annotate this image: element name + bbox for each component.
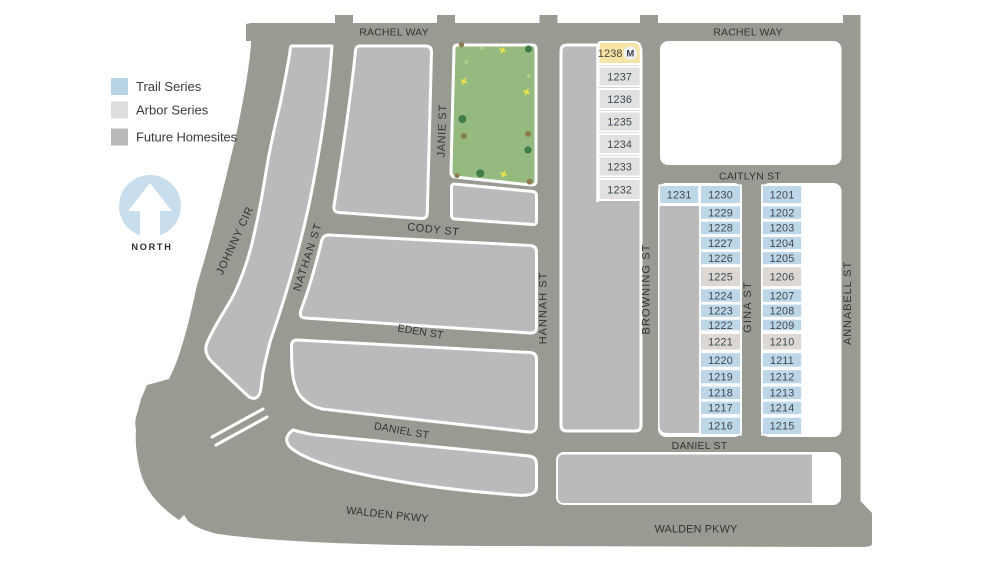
svg-text:1235: 1235 bbox=[607, 116, 632, 128]
svg-text:1238: 1238 bbox=[598, 48, 623, 60]
svg-text:1225: 1225 bbox=[708, 271, 733, 283]
svg-text:1216: 1216 bbox=[708, 421, 733, 433]
svg-text:1236: 1236 bbox=[607, 94, 632, 106]
svg-text:1226: 1226 bbox=[708, 253, 733, 265]
svg-text:1234: 1234 bbox=[607, 139, 632, 151]
svg-text:1210: 1210 bbox=[770, 337, 795, 349]
svg-text:1229: 1229 bbox=[708, 207, 733, 219]
svg-text:1224: 1224 bbox=[708, 290, 733, 302]
svg-text:RACHEL WAY: RACHEL WAY bbox=[713, 27, 782, 39]
svg-text:1211: 1211 bbox=[770, 355, 794, 367]
svg-text:1203: 1203 bbox=[770, 223, 795, 235]
svg-text:1221: 1221 bbox=[708, 337, 733, 349]
svg-text:1214: 1214 bbox=[770, 403, 795, 415]
svg-text:1213: 1213 bbox=[770, 388, 795, 400]
svg-text:CAITLYN ST: CAITLYN ST bbox=[719, 171, 781, 183]
svg-text:1204: 1204 bbox=[770, 238, 795, 250]
svg-text:Trail Series: Trail Series bbox=[136, 79, 202, 94]
svg-text:1208: 1208 bbox=[770, 306, 795, 318]
svg-text:1220: 1220 bbox=[708, 355, 733, 367]
svg-text:1202: 1202 bbox=[770, 207, 795, 219]
svg-text:1217: 1217 bbox=[708, 403, 733, 415]
svg-text:WALDEN PKWY: WALDEN PKWY bbox=[655, 524, 738, 536]
svg-text:1231: 1231 bbox=[667, 189, 692, 201]
svg-text:1232: 1232 bbox=[607, 184, 632, 196]
svg-text:Future Homesites: Future Homesites bbox=[136, 130, 238, 145]
svg-text:1237: 1237 bbox=[607, 71, 632, 83]
svg-text:1227: 1227 bbox=[708, 238, 733, 250]
svg-text:1222: 1222 bbox=[708, 320, 733, 332]
svg-text:1212: 1212 bbox=[770, 372, 795, 384]
svg-text:NORTH: NORTH bbox=[131, 242, 172, 252]
svg-text:1230: 1230 bbox=[708, 189, 733, 201]
svg-text:1228: 1228 bbox=[708, 223, 733, 235]
svg-text:HANNAH ST: HANNAH ST bbox=[538, 272, 550, 345]
svg-text:1205: 1205 bbox=[770, 253, 795, 265]
svg-text:1223: 1223 bbox=[708, 306, 733, 318]
svg-text:JANIE ST: JANIE ST bbox=[436, 104, 450, 157]
svg-text:1233: 1233 bbox=[607, 161, 632, 173]
svg-text:1209: 1209 bbox=[770, 320, 795, 332]
svg-text:RACHEL WAY: RACHEL WAY bbox=[359, 27, 428, 39]
svg-text:1206: 1206 bbox=[770, 271, 795, 283]
svg-text:DANIEL ST: DANIEL ST bbox=[672, 440, 728, 452]
svg-text:Arbor Series: Arbor Series bbox=[136, 103, 209, 118]
svg-text:1207: 1207 bbox=[770, 290, 795, 302]
svg-text:M: M bbox=[626, 49, 634, 60]
svg-text:1201: 1201 bbox=[770, 189, 795, 201]
svg-text:GINA ST: GINA ST bbox=[742, 281, 754, 333]
svg-text:1215: 1215 bbox=[770, 421, 795, 433]
svg-text:1218: 1218 bbox=[708, 388, 733, 400]
svg-text:BROWNING ST: BROWNING ST bbox=[641, 244, 653, 335]
svg-text:1219: 1219 bbox=[708, 372, 733, 384]
svg-text:ANNABELL ST: ANNABELL ST bbox=[842, 261, 854, 345]
